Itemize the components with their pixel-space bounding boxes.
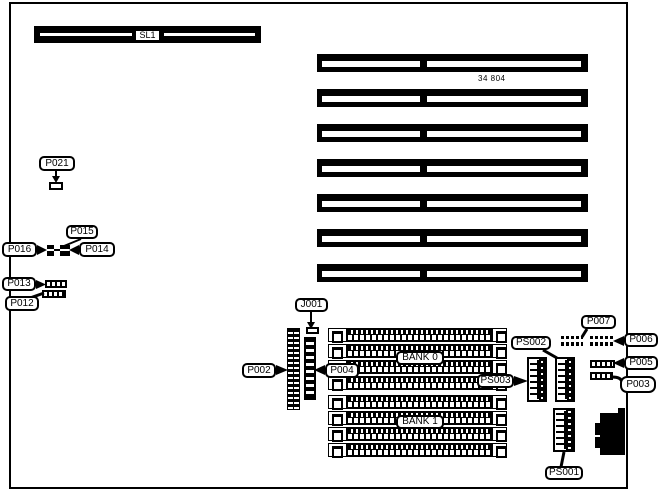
simm-body — [346, 377, 493, 389]
connector-p007 — [561, 336, 583, 346]
simm-latch-icon — [493, 396, 506, 408]
label-p021: P021 — [39, 156, 75, 171]
pin-column — [530, 360, 539, 399]
label-p012: P012 — [5, 296, 39, 311]
ps001-text: PS001 — [549, 468, 579, 478]
pin-column — [556, 411, 566, 449]
simm-socket-bank1-3 — [328, 427, 507, 441]
slot-key-right — [427, 271, 581, 277]
pin-row — [592, 374, 611, 378]
simm-body — [346, 329, 493, 341]
simm-latch-icon — [493, 412, 506, 424]
connector-p013 — [45, 280, 67, 288]
simm-latch-icon — [329, 377, 346, 389]
simm-latch-icon — [329, 428, 346, 440]
label-p006: P006 — [624, 333, 658, 347]
label-bank1: BANK 1 — [396, 415, 444, 429]
p007-text: P007 — [587, 317, 610, 327]
connector-ps001 — [553, 408, 575, 452]
simm-socket-bank0-1 — [328, 328, 507, 342]
connector-p012 — [42, 290, 66, 298]
simm-latch-icon — [493, 345, 506, 357]
p021-text: P021 — [45, 159, 68, 169]
pin-row — [348, 434, 491, 439]
p002-text: P002 — [247, 366, 270, 376]
pin-row — [348, 335, 491, 340]
p014-text: P014 — [85, 245, 108, 255]
expansion-slot-5 — [317, 194, 588, 212]
connector-p006 — [590, 336, 615, 346]
slot-key-left — [322, 96, 420, 102]
sl1-text: SL1 — [139, 31, 155, 40]
pin-row — [348, 450, 491, 455]
slot-key-right — [427, 61, 581, 67]
slot-key-right — [427, 96, 581, 102]
label-p016: P016 — [2, 242, 37, 257]
contact-ticks — [348, 378, 491, 382]
label-p007: P007 — [581, 315, 616, 329]
slot-key-right — [427, 236, 581, 242]
contact-ticks — [348, 330, 491, 334]
pin-row — [348, 402, 491, 407]
pin-column — [566, 410, 574, 450]
label-p015: P015 — [66, 225, 98, 239]
contact-ticks — [348, 429, 491, 433]
label-p002: P002 — [242, 363, 276, 378]
pin-row — [47, 282, 65, 286]
p004-text: P004 — [330, 366, 353, 376]
contact-ticks — [348, 397, 491, 401]
slot-key-left — [322, 166, 420, 172]
label-ps002: PS002 — [511, 336, 551, 350]
connector-p004 — [304, 337, 316, 400]
p005-text: P005 — [629, 358, 652, 368]
simm-latch-icon — [329, 396, 346, 408]
simm-body — [346, 396, 493, 408]
j001-text: J001 — [301, 300, 323, 310]
slot-key-left — [322, 131, 420, 137]
slot-key-left — [322, 201, 420, 207]
contact-ticks — [348, 346, 491, 350]
simm-latch-icon — [329, 444, 346, 456]
label-sl1: SL1 — [134, 29, 161, 42]
expansion-slot-3 — [317, 124, 588, 142]
pin-column — [567, 359, 574, 400]
simm-latch-icon — [329, 412, 346, 424]
pin-column — [539, 359, 546, 400]
pin-row — [592, 362, 613, 366]
sl1-stripe-left — [40, 33, 132, 36]
p012-text: P012 — [10, 299, 33, 309]
jumper-wire — [54, 249, 60, 251]
simm-latch-icon — [493, 329, 506, 341]
sl1-stripe-right — [164, 33, 255, 36]
connector-p003 — [590, 372, 613, 380]
slot-key-left — [322, 236, 420, 242]
connector-p016 — [47, 245, 54, 256]
expansion-slot-4 — [317, 159, 588, 177]
pin-row — [348, 367, 491, 372]
contact-ticks — [348, 445, 491, 449]
bank0-text: BANK 0 — [402, 353, 438, 363]
slot-key-left — [322, 61, 420, 67]
label-ps003: PS003 — [477, 374, 514, 388]
label-j001: J001 — [295, 298, 328, 312]
expansion-slot-6 — [317, 229, 588, 247]
motherboard-diagram: SL1 34 804 — [0, 0, 663, 493]
slot-key-left — [322, 271, 420, 277]
slot-key-right — [427, 166, 581, 172]
simm-latch-icon — [493, 361, 506, 373]
simm-latch-icon — [329, 329, 346, 341]
pin-column — [294, 329, 299, 409]
connector-p005 — [590, 360, 615, 368]
p006-text: P006 — [629, 335, 652, 345]
label-p003: P003 — [620, 376, 656, 393]
label-p004: P004 — [325, 363, 359, 378]
pin-column — [558, 360, 567, 399]
simm-latch-icon — [329, 345, 346, 357]
expansion-slot-1 — [317, 54, 588, 72]
label-p014: P014 — [79, 242, 115, 257]
connector-ps002 — [555, 357, 575, 402]
board-part-number: 34 804 — [478, 74, 505, 83]
slot-key-right — [427, 201, 581, 207]
p003-text: P003 — [626, 380, 649, 390]
slot-key-right — [427, 131, 581, 137]
p016-text: P016 — [8, 245, 31, 255]
connector-j001 — [306, 327, 319, 334]
bank1-text: BANK 1 — [402, 417, 438, 427]
label-p013: P013 — [2, 277, 36, 291]
simm-latch-icon — [493, 428, 506, 440]
simm-body — [346, 444, 493, 456]
connector-p002 — [287, 328, 300, 410]
connector-p021 — [49, 182, 63, 190]
simm-socket-bank1-1 — [328, 395, 507, 409]
pin-column — [288, 329, 293, 409]
simm-socket-bank1-4 — [328, 443, 507, 457]
pin-row — [348, 383, 491, 388]
ps003-text: PS003 — [480, 376, 510, 386]
p015-text: P015 — [70, 227, 93, 237]
label-bank0: BANK 0 — [396, 351, 444, 365]
connector-ps003 — [527, 357, 547, 402]
ps002-text: PS002 — [516, 338, 546, 348]
pin-row — [44, 292, 64, 296]
simm-body — [346, 428, 493, 440]
p013-text: P013 — [7, 279, 30, 289]
label-ps001: PS001 — [545, 466, 583, 480]
connector-p014-p015 — [60, 245, 70, 256]
expansion-slot-7 — [317, 264, 588, 282]
simm-latch-icon — [493, 444, 506, 456]
expansion-slot-2 — [317, 89, 588, 107]
label-p005: P005 — [624, 356, 658, 370]
